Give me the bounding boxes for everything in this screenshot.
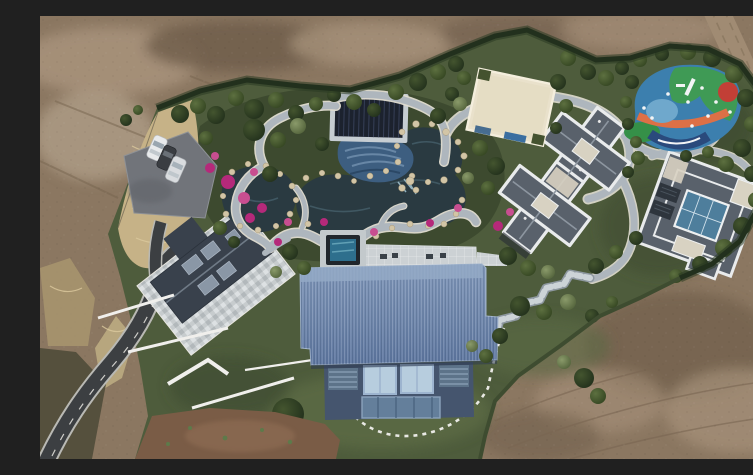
aerial-photo [40,16,753,459]
plunge-pool [320,230,366,270]
villa-roof [300,264,498,369]
